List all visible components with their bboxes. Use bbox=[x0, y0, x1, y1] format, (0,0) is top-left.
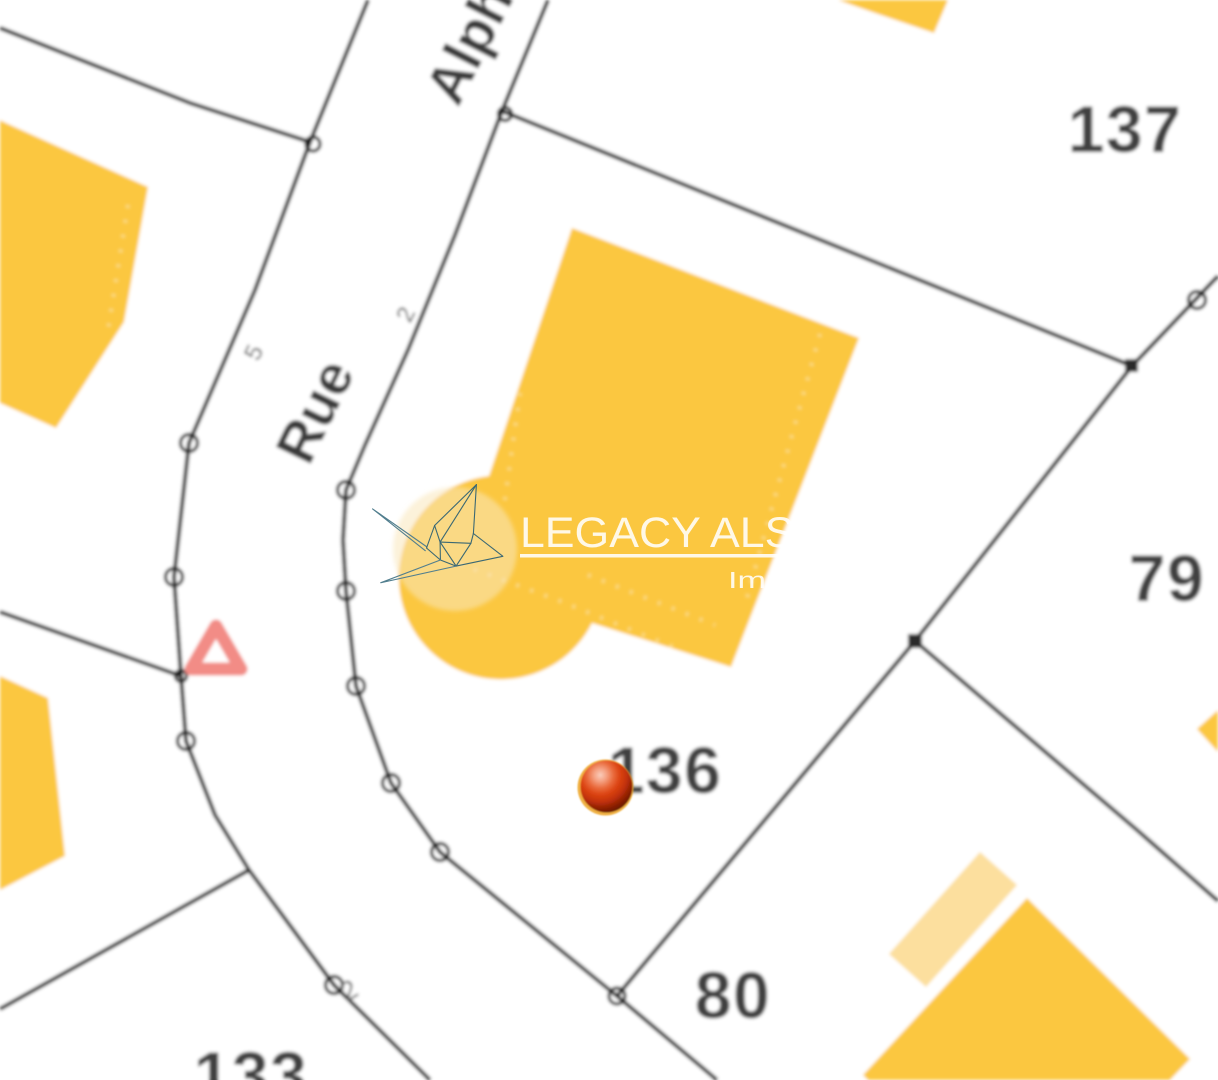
svg-text:137: 137 bbox=[1068, 92, 1183, 166]
svg-text:80: 80 bbox=[695, 958, 771, 1032]
svg-text:133: 133 bbox=[194, 1038, 309, 1080]
svg-text:LEGACY ALSACE: LEGACY ALSACE bbox=[520, 509, 886, 557]
svg-text:Immobilier: Immobilier bbox=[728, 567, 886, 593]
svg-text:79: 79 bbox=[1129, 541, 1205, 615]
